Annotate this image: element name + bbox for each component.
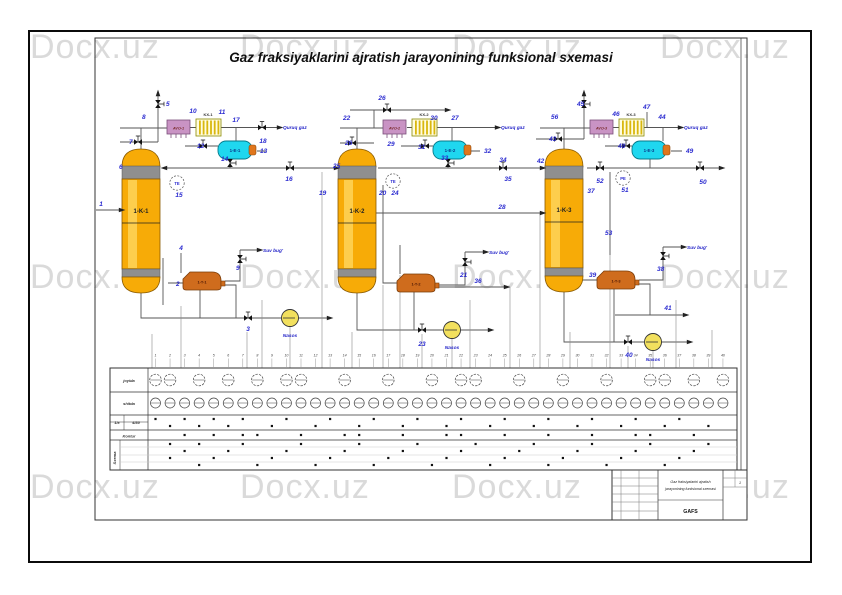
table-column-number: 31 [590, 354, 594, 358]
table-mark [358, 434, 360, 436]
stream-number: 48 [617, 143, 626, 150]
instrument-tag: TE [174, 181, 180, 186]
table-column-number: 4 [198, 354, 200, 358]
instrument-number: 51 [621, 187, 629, 194]
table-column-number: 33 [619, 354, 623, 358]
table-column-number: 20 [429, 354, 434, 358]
stream-number: 19 [319, 190, 327, 197]
valve-icon [624, 336, 632, 345]
stream-number: 45 [576, 101, 585, 108]
table-mark [649, 443, 651, 445]
table-column-number: 29 [560, 354, 565, 358]
stream-number: 12 [197, 143, 205, 150]
condenser-stripe [206, 121, 208, 135]
table-column-number: 28 [545, 354, 550, 358]
title-block-line1: Gaz fraksiyalarini ajratish [670, 480, 710, 484]
table-mark [664, 464, 666, 466]
stream-number: 26 [344, 140, 353, 147]
stream-number: 53 [605, 230, 613, 237]
table-mark [402, 425, 404, 427]
table-mark [605, 464, 607, 466]
title-block-line2: jarayonining funksional sxemasi [664, 487, 716, 491]
table-mark [300, 434, 302, 436]
valve-icon [286, 162, 294, 171]
stream-number: 27 [450, 115, 459, 122]
distillation-column-k2 [338, 149, 376, 293]
table-column-number: 6 [227, 354, 229, 358]
table-column-number: 21 [444, 354, 449, 358]
table-column-number: 17 [386, 354, 391, 358]
table-column-number: 7 [242, 354, 245, 358]
stream-number: 32 [484, 148, 492, 155]
stream-text: Suv bug' [489, 250, 510, 256]
table-mark [184, 450, 186, 452]
table-column-number: 14 [343, 354, 347, 358]
stream-number: 13 [260, 148, 268, 155]
table-column-number: 27 [531, 354, 537, 358]
table-column-number: 11 [299, 354, 303, 358]
valve-icon [418, 324, 426, 333]
condenser-stripe [203, 121, 205, 135]
table-column-number: 32 [605, 354, 609, 358]
table-mark [242, 434, 244, 436]
separator-label: 1-E-2 [445, 148, 456, 153]
stream-number: 20 [378, 190, 387, 197]
table-cell-label: 4/30 [131, 420, 141, 425]
table-mark [445, 425, 447, 427]
stream-number: 44 [657, 114, 666, 121]
table-mark [649, 434, 651, 436]
air-cooler-legs [171, 134, 609, 138]
stream-text: Suv bug' [263, 248, 284, 254]
table-mark [533, 443, 535, 445]
column-label: 1-K-3 [556, 208, 572, 214]
stream-number: 30 [430, 115, 438, 122]
condenser-stripe [622, 121, 624, 135]
stream-number: 41 [663, 305, 672, 312]
stream-number: 40 [624, 352, 633, 359]
table-mark [460, 434, 462, 436]
stream-number: 22 [342, 115, 351, 122]
table-column-number: 26 [516, 354, 521, 358]
condenser-stripe [430, 121, 432, 135]
table-column-number: 24 [487, 354, 492, 358]
stream-number: 3 [246, 326, 250, 333]
table-mark [678, 418, 680, 420]
table-column-number: 2 [168, 354, 171, 358]
table-column-number: 25 [502, 354, 507, 358]
table-mark [358, 425, 360, 427]
valve-icon [383, 104, 391, 113]
table-mark [431, 464, 433, 466]
flow-arrow-icon [156, 90, 161, 97]
pump-3 [645, 334, 662, 351]
condenser-label: KX-3 [626, 112, 636, 117]
table-mark [547, 418, 549, 420]
instrument-number: 24 [390, 190, 399, 197]
table-mark [344, 450, 346, 452]
table-column-number: 1 [155, 354, 157, 358]
stream-number: 2 [175, 281, 180, 288]
table-group-label: Sxema [112, 451, 117, 465]
table-mark [184, 418, 186, 420]
table-mark [256, 434, 258, 436]
flow-arrow-icon [683, 313, 690, 318]
title-block-sheet: 1 [739, 481, 741, 485]
column-label: 1-K-2 [349, 209, 365, 215]
page: Docx.uz Docx.uz Docx.uz Docx.uz Docx.uz … [0, 0, 842, 595]
distillation-column-k3 [545, 149, 583, 292]
stream-number: 29 [386, 141, 395, 148]
reboiler-label: 1-T-3 [611, 279, 621, 284]
table-column-number: 19 [415, 354, 419, 358]
flow-arrow-icon [582, 90, 587, 97]
stream-text: Nasos [646, 357, 661, 363]
column-label: 1-K-1 [133, 209, 149, 215]
table-mark [300, 443, 302, 445]
table-mark [504, 418, 506, 420]
table-mark [373, 418, 375, 420]
table-mark [184, 434, 186, 436]
table-mark [576, 450, 578, 452]
table-mark [591, 443, 593, 445]
stream-number: 46 [611, 111, 620, 118]
table-mark [504, 434, 506, 436]
table-mark [416, 443, 418, 445]
table-mark [707, 443, 709, 445]
condenser-stripe [415, 121, 417, 135]
table-column-number: 38 [692, 354, 696, 358]
valves-layer [134, 100, 704, 345]
stream-number: 50 [699, 179, 707, 186]
pump-2 [444, 322, 461, 339]
stream-numbers-layer: 1234567891011121314161718192021222325262… [99, 95, 707, 359]
valve-icon [227, 159, 236, 167]
table-mark [198, 425, 200, 427]
flow-arrow-icon [687, 340, 694, 345]
signal-table: joyida shitda 1/x 4/30 Kontur Sxema [110, 368, 737, 470]
table-mark [707, 425, 709, 427]
valve-icon [155, 100, 164, 108]
stream-number: 11 [219, 109, 226, 116]
cooler-label: AVO-2 [388, 127, 401, 131]
instrument-number: 15 [175, 192, 183, 199]
table-mark [635, 450, 637, 452]
distillation-column-k1 [122, 149, 160, 293]
stream-number: 5 [166, 101, 170, 108]
stream-text: Quruq gaz [501, 125, 525, 131]
table-mark [314, 464, 316, 466]
table-column-number: 18 [401, 354, 405, 358]
table-mark [213, 434, 215, 436]
table-mark [445, 434, 447, 436]
stream-text: Nasos [283, 333, 298, 339]
flow-arrow-icon [327, 316, 334, 321]
stream-text: Quruq gaz [684, 125, 708, 131]
stream-number: 4 [178, 245, 183, 252]
table-mark [402, 450, 404, 452]
stream-number: 7 [129, 139, 133, 146]
table-mark [242, 418, 244, 420]
stream-number: 34 [499, 157, 507, 164]
table-mark [329, 418, 331, 420]
valve-icon [237, 255, 246, 263]
table-column-number: 8 [256, 354, 258, 358]
table-mark [533, 425, 535, 427]
flow-arrow-icon [488, 328, 495, 333]
table-column-number: 35 [648, 354, 652, 358]
table-mark [620, 457, 622, 459]
table-column-number: 5 [213, 354, 215, 358]
table-column-number: 13 [328, 354, 332, 358]
table-column-number: 3 [184, 354, 186, 358]
table-mark [416, 418, 418, 420]
stream-number: 21 [459, 272, 468, 279]
table-column-number: 12 [314, 354, 318, 358]
stream-number: 39 [589, 272, 597, 279]
reboiler-label: 1-T-1 [197, 280, 207, 285]
table-mark [198, 443, 200, 445]
table-mark [576, 425, 578, 427]
flow-arrow-icon [719, 166, 726, 171]
table-mark [547, 434, 549, 436]
stream-number: 1 [99, 201, 103, 208]
stream-text: Quruq gaz [283, 125, 307, 131]
table-column-number: 16 [372, 354, 376, 358]
condenser-stripe [218, 121, 220, 135]
stream-number: 42 [536, 158, 545, 165]
table-mark [460, 418, 462, 420]
condenser-stripe [419, 121, 421, 135]
table-mark [664, 425, 666, 427]
table-cell-label: 1/x [114, 420, 120, 425]
valve-icon [596, 162, 604, 171]
table-mark [358, 443, 360, 445]
table-mark [344, 434, 346, 436]
stream-number: 36 [474, 278, 482, 285]
condenser-stripe [633, 121, 635, 135]
table-mark [256, 464, 258, 466]
title-block-code: GAFS [683, 509, 698, 515]
condenser-stripe [426, 121, 428, 135]
cooler-label: AVO-1 [172, 127, 184, 131]
condenser-stripe [626, 121, 628, 135]
table-mark [169, 457, 171, 459]
stream-number: 35 [504, 176, 512, 183]
condenser-stripe [214, 121, 216, 135]
table-mark [213, 457, 215, 459]
table-mark [591, 418, 593, 420]
table-column-number: 39 [706, 354, 710, 358]
table-column-number: 37 [677, 354, 682, 358]
stream-number: 10 [189, 108, 197, 115]
table-mark [329, 457, 331, 459]
table-mark [242, 443, 244, 445]
table-mark [271, 457, 273, 459]
table-mark [489, 425, 491, 427]
table-column-number: 10 [284, 354, 288, 358]
table-mark [460, 450, 462, 452]
stream-number: 8 [142, 114, 146, 121]
table-row-label: shitda [123, 401, 136, 406]
table-mark [387, 457, 389, 459]
valve-icon [696, 162, 704, 171]
table-mark [678, 457, 680, 459]
table-column-number: 40 [721, 354, 725, 358]
table-mark [489, 464, 491, 466]
table-mark [169, 425, 171, 427]
table-mark [169, 443, 171, 445]
stream-number: 33 [441, 155, 449, 162]
table-mark [271, 425, 273, 427]
reboiler-label: 1-T-2 [411, 282, 421, 287]
stream-number: 49 [685, 148, 694, 155]
pump-1 [282, 310, 299, 327]
stream-number: 31 [418, 144, 426, 151]
table-mark [475, 443, 477, 445]
table-mark [373, 464, 375, 466]
table-mark [591, 434, 593, 436]
separator-label: 1-E-1 [230, 148, 241, 153]
condenser-stripe [629, 121, 631, 135]
table-mark [693, 434, 695, 436]
instrument-tag: TE [390, 179, 396, 184]
stream-number: 9 [236, 265, 240, 272]
stream-number: 28 [497, 204, 506, 211]
valve-icon [462, 258, 471, 266]
stream-number: 38 [657, 266, 665, 273]
table-mark [693, 450, 695, 452]
flow-arrow-icon [161, 166, 168, 171]
table-mark [635, 434, 637, 436]
table-mark [504, 457, 506, 459]
table-column-number: 9 [271, 354, 273, 358]
condenser-stripe [210, 121, 212, 135]
stream-number: 18 [259, 138, 267, 145]
stream-text: Suv bug' [687, 245, 708, 251]
stream-number: 47 [642, 104, 651, 111]
stream-number: 16 [285, 176, 293, 183]
condenser-stripe [422, 121, 424, 135]
condenser-stripe [199, 121, 201, 135]
table-mark [445, 457, 447, 459]
table-column-number: 15 [357, 354, 361, 358]
table-mark [314, 425, 316, 427]
table-column-number: 22 [458, 354, 463, 358]
stream-number: 17 [232, 117, 240, 124]
stream-number: 52 [596, 178, 604, 185]
table-mark [213, 418, 215, 420]
table-column-number: 23 [473, 354, 478, 358]
table-mark [562, 457, 564, 459]
valve-icon [244, 312, 252, 321]
valve-icon [660, 252, 669, 260]
stream-text: Nasos [445, 345, 460, 351]
stream-texts-layer: Quruq gazQuruq gazQuruq gazSuv bug'Suv b… [263, 125, 708, 363]
diagram-svg: 1-K-1 1-K-2 1-K-3 AVO-1 AVO-2 AVO-3 KX-1… [0, 0, 842, 595]
title-block: Gaz fraksiyalarini ajratish jarayonining… [612, 470, 747, 520]
flow-arrow-icon [504, 285, 511, 290]
table-column-number: 36 [663, 354, 667, 358]
condenser-label: KX-1 [203, 112, 213, 117]
table-mark [547, 464, 549, 466]
table-mark [198, 464, 200, 466]
stream-number: 37 [587, 188, 595, 195]
table-mark [620, 425, 622, 427]
condenser-stripe [434, 121, 436, 135]
table-mark [402, 434, 404, 436]
condenser-label: KX-2 [419, 112, 429, 117]
stream-number: 43 [548, 136, 557, 143]
stream-number: 56 [551, 114, 559, 121]
table-mark [635, 418, 637, 420]
table-mark [285, 418, 287, 420]
valve-icon [258, 122, 266, 131]
condenser-stripe [641, 121, 643, 135]
stream-number: 25 [332, 163, 341, 170]
separator-label: 1-E-3 [644, 148, 655, 153]
table-column-number: 30 [575, 354, 579, 358]
table-row-label: Kontur [122, 434, 136, 439]
table-mark [227, 450, 229, 452]
stream-number: 23 [417, 341, 426, 348]
stream-number: 6 [119, 164, 123, 171]
table-row-label: joyida [122, 378, 135, 383]
table-mark [154, 418, 156, 420]
cooler-label: AVO-3 [595, 127, 608, 131]
stream-number: 14 [221, 156, 229, 163]
stream-number: 26 [377, 95, 386, 102]
table-mark [227, 425, 229, 427]
table-column-number: 34 [634, 354, 638, 358]
table-mark [285, 450, 287, 452]
flow-arrow-icon [445, 108, 452, 113]
instrument-tag: PE [620, 176, 626, 181]
table-mark [518, 450, 520, 452]
condenser-stripe [637, 121, 639, 135]
